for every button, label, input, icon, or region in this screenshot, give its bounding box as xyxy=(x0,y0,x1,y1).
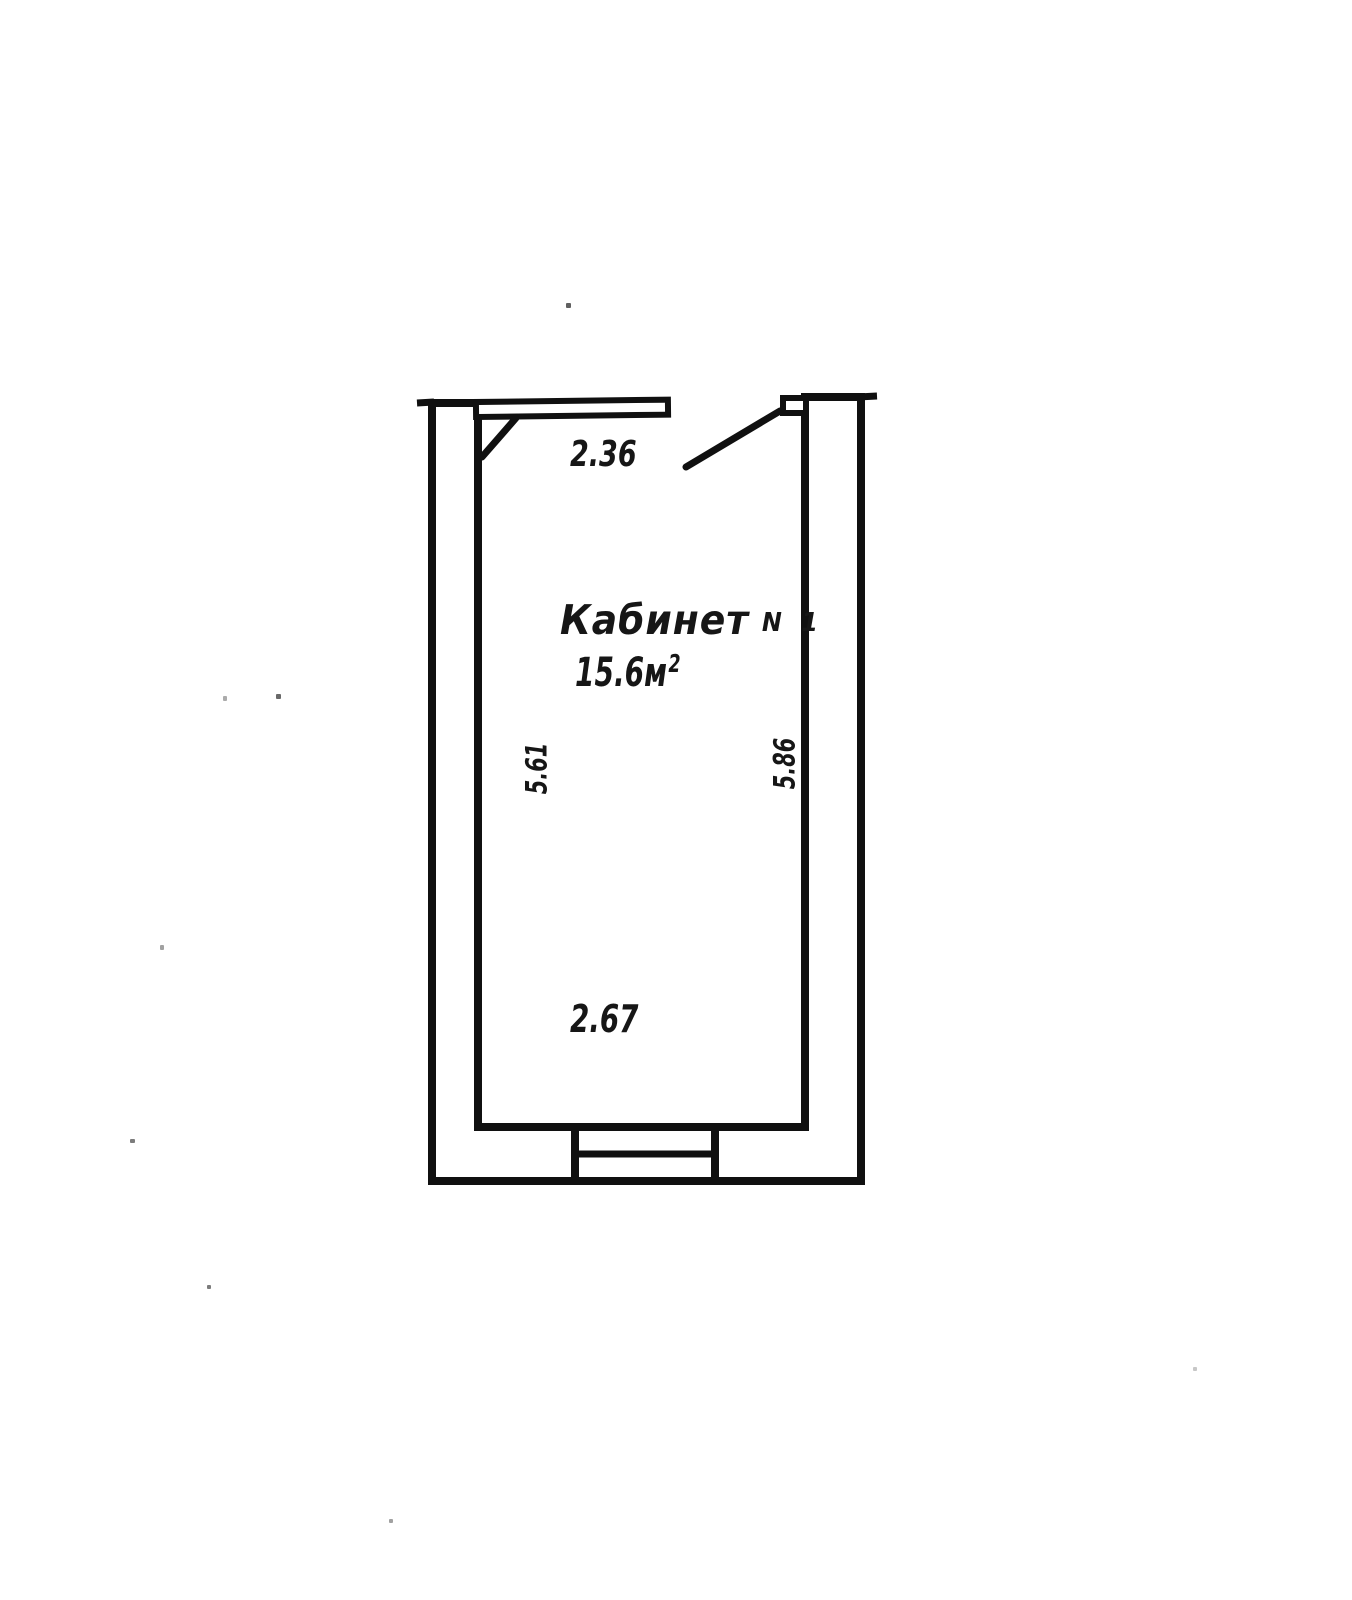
dimension-left-height: 5.61 xyxy=(523,733,552,805)
scan-speck xyxy=(1193,1367,1197,1371)
door-leaf xyxy=(476,400,668,417)
wall-cap-overshoot-right xyxy=(858,396,877,397)
room-number-text: N 1 xyxy=(762,608,824,638)
left-wall xyxy=(432,403,575,1181)
wall-cap-overshoot-left xyxy=(417,402,434,403)
floor-plan-drawing xyxy=(0,0,1352,1600)
room-name-text: Кабинет xyxy=(560,596,749,644)
scan-speck xyxy=(207,1285,211,1289)
dimension-top-width: 2.36 xyxy=(570,437,637,473)
area-value: 15.6 xyxy=(575,650,644,696)
room-area-label: 15.6м2 xyxy=(575,651,681,693)
scan-speck xyxy=(130,1139,135,1143)
scan-speck xyxy=(566,303,571,308)
door-open-leaf-line xyxy=(686,411,780,467)
scanned-floor-plan-page: КабинетN 1 15.6м2 2.36 5.61 5.86 2.67 xyxy=(0,0,1352,1600)
dimension-right-height: 5.86 xyxy=(771,728,800,800)
dimension-bottom-width: 2.67 xyxy=(570,1000,638,1038)
door-swing-strut xyxy=(482,418,516,457)
scan-speck xyxy=(276,694,281,699)
door-jamb xyxy=(783,398,806,413)
room-title: КабинетN 1 xyxy=(560,600,823,641)
scan-speck xyxy=(389,1519,393,1523)
scan-speck xyxy=(223,696,227,701)
area-unit: м xyxy=(644,650,667,696)
area-exponent: 2 xyxy=(668,649,680,678)
scan-speck xyxy=(160,945,164,950)
